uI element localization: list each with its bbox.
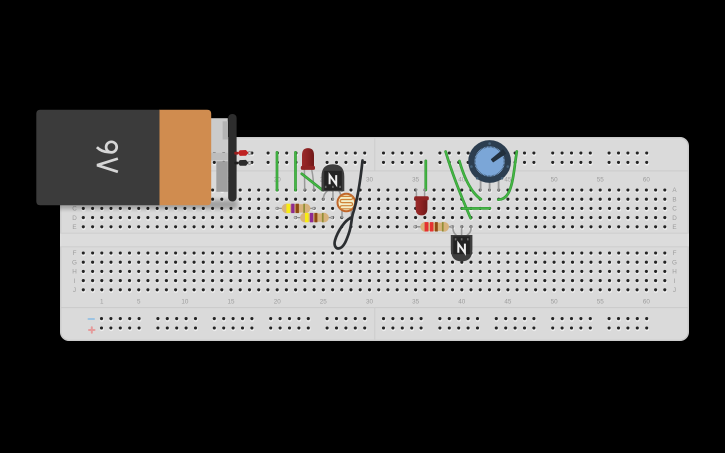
svg-text:50: 50	[551, 298, 559, 305]
svg-text:I: I	[674, 278, 676, 285]
svg-text:55: 55	[597, 298, 605, 305]
svg-text:60: 60	[643, 176, 651, 183]
svg-text:1: 1	[100, 298, 104, 305]
svg-text:5: 5	[137, 298, 141, 305]
svg-text:55: 55	[597, 176, 605, 183]
svg-text:45: 45	[504, 298, 512, 305]
svg-text:I: I	[74, 278, 76, 285]
svg-text:J: J	[73, 287, 76, 294]
svg-text:H: H	[672, 269, 677, 276]
svg-text:G: G	[72, 259, 77, 266]
svg-text:F: F	[673, 250, 677, 257]
svg-text:C: C	[672, 206, 677, 213]
svg-text:15: 15	[227, 298, 235, 305]
svg-text:E: E	[72, 224, 76, 231]
svg-text:50: 50	[551, 176, 559, 183]
svg-text:E: E	[672, 224, 676, 231]
svg-text:40: 40	[458, 298, 466, 305]
svg-text:B: B	[672, 196, 676, 203]
svg-text:10: 10	[181, 298, 189, 305]
svg-text:H: H	[72, 269, 77, 276]
svg-text:20: 20	[274, 298, 282, 305]
svg-text:30: 30	[366, 176, 374, 183]
svg-text:D: D	[672, 215, 677, 222]
svg-text:25: 25	[320, 298, 328, 305]
svg-text:F: F	[73, 250, 77, 257]
svg-text:35: 35	[412, 176, 420, 183]
svg-text:G: G	[672, 259, 677, 266]
svg-text:J: J	[673, 287, 676, 294]
svg-text:60: 60	[643, 298, 651, 305]
svg-text:D: D	[72, 215, 77, 222]
svg-text:30: 30	[366, 298, 374, 305]
svg-text:35: 35	[412, 298, 420, 305]
